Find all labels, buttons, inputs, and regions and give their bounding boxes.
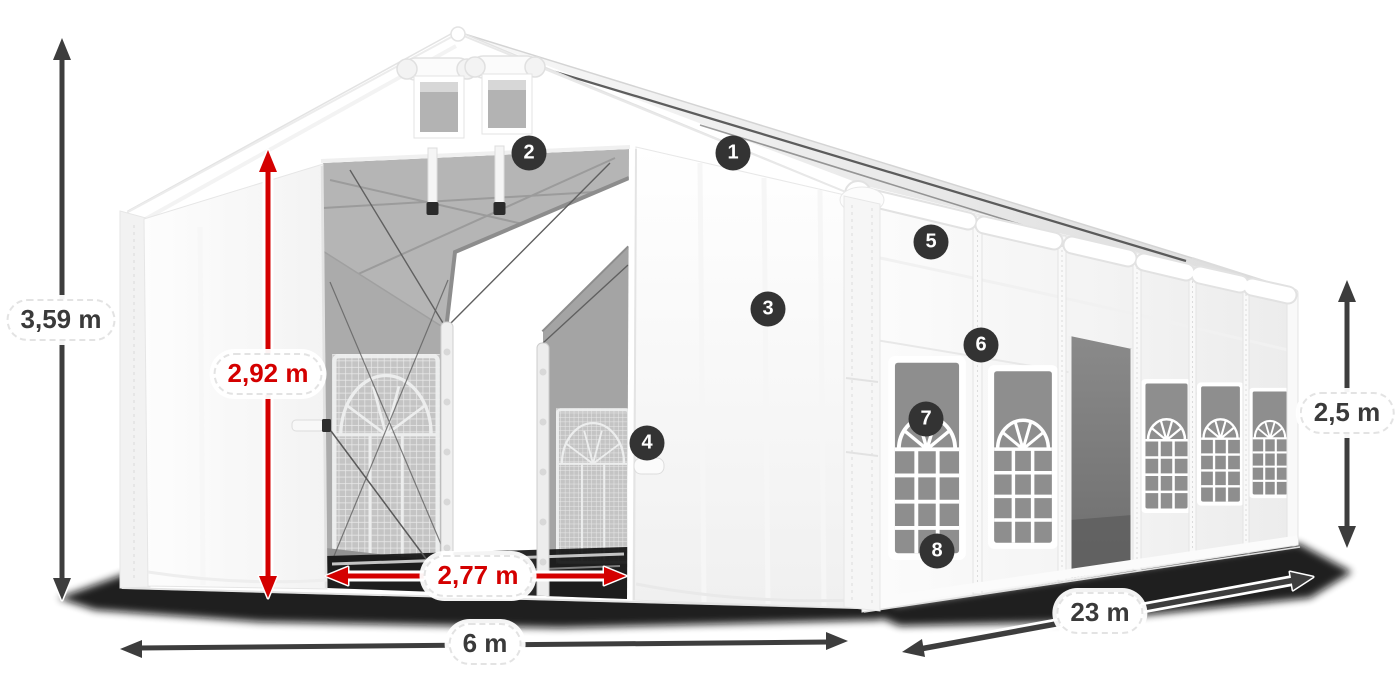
right-door-panel <box>633 147 858 608</box>
side-window-1 <box>888 356 966 560</box>
side-window-3 <box>1141 379 1192 513</box>
product-dimension-diagram: 3,59 m 2,92 m 2,77 m 6 m 23 m 2,5 m 1 2 … <box>0 0 1400 700</box>
tent-illustration <box>0 0 1400 700</box>
dimension-label-tent-length: 23 m <box>1056 592 1143 634</box>
entrance-opening <box>320 140 635 605</box>
front-corner-post <box>840 187 884 611</box>
callout-badge-6[interactable]: 6 <box>964 328 999 363</box>
callout-badge-3[interactable]: 3 <box>751 292 786 327</box>
side-window-2 <box>988 365 1058 549</box>
dimension-label-tent-width: 6 m <box>449 623 522 665</box>
callout-badge-7[interactable]: 7 <box>909 402 944 437</box>
dimension-label-side-height: 2,5 m <box>1300 392 1395 434</box>
dimension-label-entrance-width: 2,77 m <box>424 555 533 597</box>
door-handle-strap <box>634 458 664 474</box>
side-window-4 <box>1197 382 1244 505</box>
dimension-label-entrance-height: 2,92 m <box>214 353 323 395</box>
callout-badge-2[interactable]: 2 <box>512 136 547 171</box>
side-doorway <box>1070 336 1132 578</box>
callout-badge-1[interactable]: 1 <box>716 136 751 171</box>
callout-badge-8[interactable]: 8 <box>920 534 955 569</box>
callout-badge-5[interactable]: 5 <box>914 225 949 260</box>
side-window-5 <box>1249 388 1291 498</box>
dimension-label-total-height: 3,59 m <box>7 299 116 341</box>
callout-badge-4[interactable]: 4 <box>630 426 665 461</box>
